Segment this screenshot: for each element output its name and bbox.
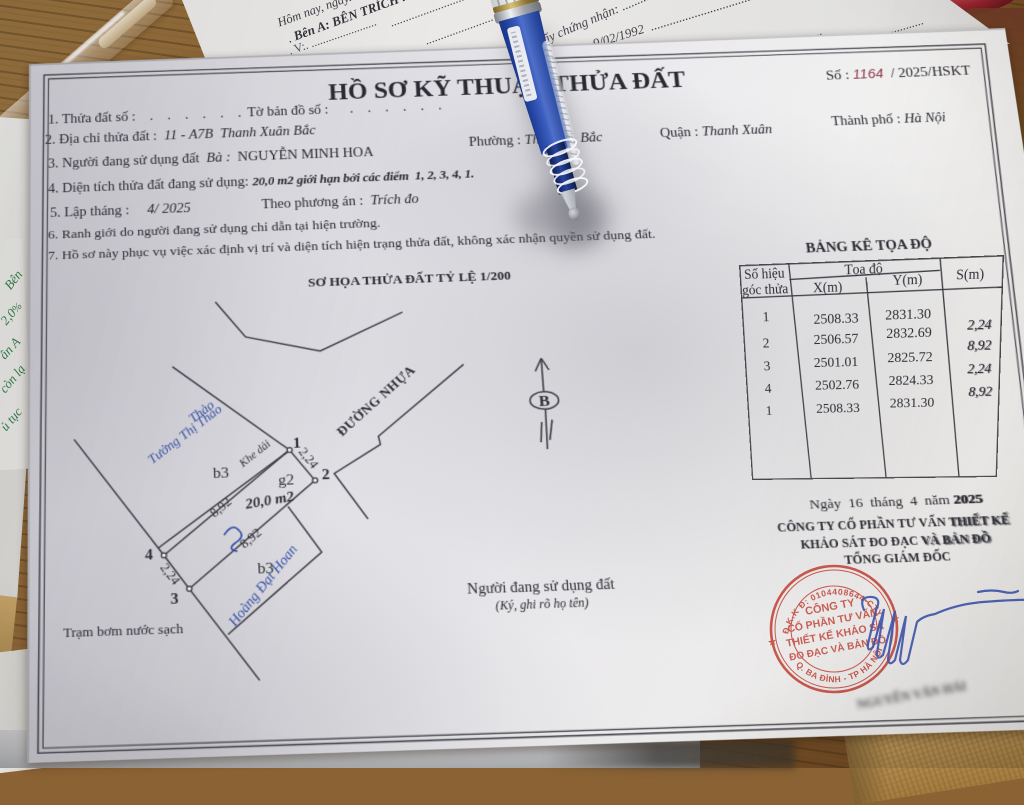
svg-text:ĐƯỜNG NHỰA: ĐƯỜNG NHỰA: [333, 362, 418, 439]
svg-text:g2: g2: [278, 471, 295, 489]
svg-text:2,24: 2,24: [967, 361, 991, 377]
svg-text:Tưởng Thị Thảo: Tưởng Thị Thảo: [145, 402, 225, 467]
svg-text:4: 4: [764, 382, 772, 397]
svg-text:S(m): S(m): [956, 266, 985, 283]
svg-text:8,92: 8,92: [967, 338, 991, 354]
svg-text:Số hiệu: Số hiệu: [744, 266, 785, 283]
svg-text:B: B: [538, 393, 551, 410]
svg-text:2501.01: 2501.01: [814, 355, 859, 371]
svg-text:2825.72: 2825.72: [887, 350, 932, 366]
svg-text:2508.33: 2508.33: [813, 311, 858, 328]
svg-text:2506.57: 2506.57: [813, 331, 859, 348]
svg-text:2831.30: 2831.30: [885, 306, 931, 323]
svg-text:Tọa độ: Tọa độ: [844, 261, 883, 278]
svg-text:8,92: 8,92: [968, 384, 992, 399]
svg-text:2: 2: [321, 466, 330, 484]
svg-text:2,24: 2,24: [157, 561, 183, 588]
svg-text:Y(m): Y(m): [892, 272, 922, 289]
svg-text:20,0 m2: 20,0 m2: [243, 488, 296, 513]
svg-text:góc thửa: góc thửa: [742, 281, 789, 298]
svg-text:3: 3: [170, 590, 178, 608]
svg-text:2,24: 2,24: [967, 317, 991, 333]
svg-text:1: 1: [765, 404, 772, 418]
svg-text:2502.76: 2502.76: [815, 378, 859, 394]
svg-text:★: ★: [766, 636, 778, 650]
svg-text:2: 2: [762, 336, 770, 351]
svg-text:2508.33: 2508.33: [816, 401, 860, 416]
svg-text:4: 4: [145, 546, 153, 564]
svg-text:1: 1: [762, 310, 770, 326]
svg-text:2832.69: 2832.69: [886, 325, 932, 342]
svg-text:Hoàng Đạt Hoan: Hoàng Đạt Hoan: [224, 542, 300, 630]
svg-text:X(m): X(m): [813, 279, 843, 296]
svg-text:2824.33: 2824.33: [889, 373, 934, 389]
svg-text:3: 3: [763, 359, 770, 374]
svg-text:b3: b3: [213, 465, 229, 483]
svg-text:2831.30: 2831.30: [890, 396, 935, 412]
